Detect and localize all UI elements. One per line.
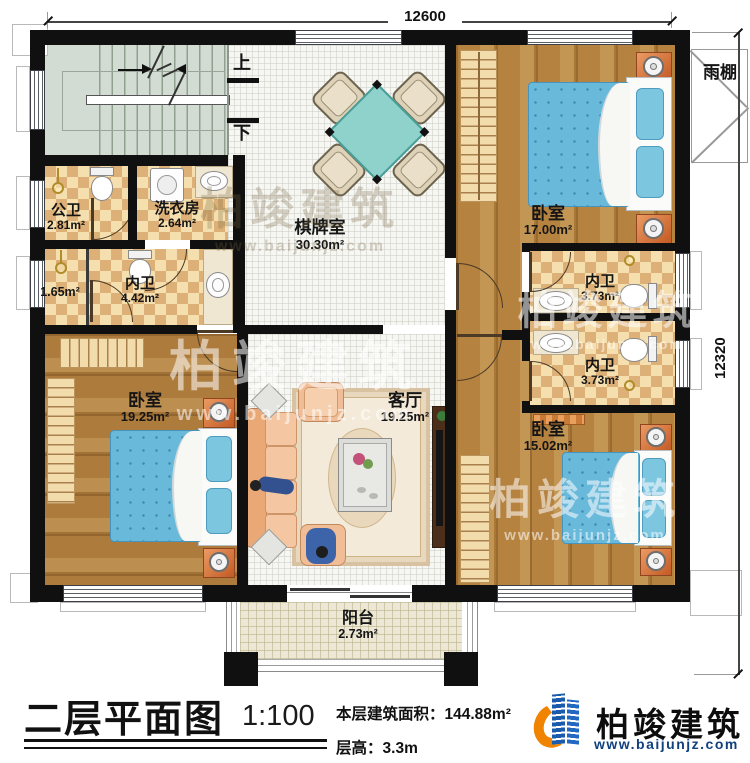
window-left-3 <box>30 260 45 308</box>
room-area-ensuite-main: 4.42m² <box>103 292 177 305</box>
room-area-bedroom-tr: 17.00m² <box>505 223 591 237</box>
balcony-column-left <box>224 652 258 686</box>
room-label-chess: 棋牌室 <box>278 219 362 238</box>
scale-label: 1:100 <box>242 700 315 733</box>
window-top-1 <box>295 30 402 45</box>
room-area-public-bath: 2.81m² <box>28 219 104 232</box>
floor-height-line: 层高：3.3m <box>336 736 418 758</box>
room-area-balcony: 2.73m² <box>318 628 398 642</box>
sink-icon <box>206 272 230 298</box>
toilet-icon <box>90 167 114 176</box>
floorplan-canvas: 上 下 <box>0 0 750 763</box>
window-bottom-2 <box>497 585 633 602</box>
lamp-icon <box>646 427 666 447</box>
lamp-icon <box>209 552 229 572</box>
stair-direction-line <box>118 69 142 71</box>
room-area-chess: 30.30m² <box>278 238 362 252</box>
floor-area-value: 144.88m² <box>445 706 511 723</box>
lamp-icon <box>643 56 664 77</box>
lamp-icon <box>643 218 664 239</box>
sofa-cushion <box>265 446 297 480</box>
dimension-top: 12600 <box>388 8 462 25</box>
armchair <box>298 382 344 422</box>
pillow-icon <box>636 146 664 198</box>
stair-arrow-left-icon <box>176 64 186 74</box>
floor-area-line: 本层建筑面积：144.88m² <box>336 702 511 724</box>
stair-arrow-right-icon <box>142 64 152 74</box>
toilet-icon <box>648 283 657 309</box>
dimension-right: 12320 <box>712 316 732 400</box>
wardrobe-icon <box>60 338 144 368</box>
room-area-ensuite-lower: 3.73m² <box>563 374 637 387</box>
room-area-bedroom-bl: 19.25m² <box>102 410 188 424</box>
pillow-icon <box>642 458 666 496</box>
drain-icon <box>55 262 67 274</box>
brand-url: www.baijunjz.com <box>594 736 739 752</box>
washing-machine-icon <box>150 168 184 202</box>
person-head <box>250 480 261 491</box>
room-label-bedroom-bl: 卧室 <box>105 392 185 411</box>
floor-height-label: 层高： <box>336 740 383 757</box>
stair-rail <box>86 95 230 105</box>
coffee-table <box>338 438 392 512</box>
room-area-bedroom-br: 15.02m² <box>505 439 591 453</box>
pillow-icon <box>642 500 666 538</box>
stair-down-label: 下 <box>230 124 254 144</box>
balcony-column-right <box>444 652 478 686</box>
drain-icon <box>624 255 635 266</box>
tv-icon <box>436 430 443 526</box>
floor-height-value: 3.3m <box>383 740 418 757</box>
lamp-icon <box>646 551 666 571</box>
pillow-icon <box>206 488 232 534</box>
room-area-laundry: 2.64m² <box>139 217 215 230</box>
room-label-bedroom-br: 卧室 <box>508 421 588 440</box>
toilet-icon <box>648 336 657 362</box>
stair-up-label: 上 <box>230 54 254 74</box>
window-top-2 <box>527 30 633 45</box>
sink-icon <box>539 333 573 353</box>
lamp-icon <box>209 402 229 422</box>
title-underline-thin <box>24 747 327 749</box>
sink-icon <box>200 171 228 191</box>
window-bottom-1 <box>63 585 203 602</box>
title-underline <box>24 739 327 742</box>
wardrobe-icon <box>460 455 490 583</box>
person-head <box>316 546 328 558</box>
pillow-icon <box>636 88 664 140</box>
room-label-living: 客厅 <box>360 392 450 411</box>
room-label-balcony: 阳台 <box>318 610 398 628</box>
floor-area-label: 本层建筑面积： <box>336 706 445 723</box>
brand-logo-icon <box>534 692 590 754</box>
shelf-icon <box>47 378 75 504</box>
window-right-1 <box>675 253 690 308</box>
room-area-ensuite-upper: 3.73m² <box>563 290 637 303</box>
window-left-1 <box>30 70 45 130</box>
pillow-icon <box>206 436 232 482</box>
room-area-living: 19.25m² <box>357 410 453 424</box>
drain-icon <box>52 182 64 194</box>
window-right-2 <box>675 340 690 388</box>
room-area-closet: 1.65m² <box>30 286 90 300</box>
page-title: 二层平面图 <box>24 688 224 743</box>
room-label-bedroom-tr: 卧室 <box>508 205 588 224</box>
